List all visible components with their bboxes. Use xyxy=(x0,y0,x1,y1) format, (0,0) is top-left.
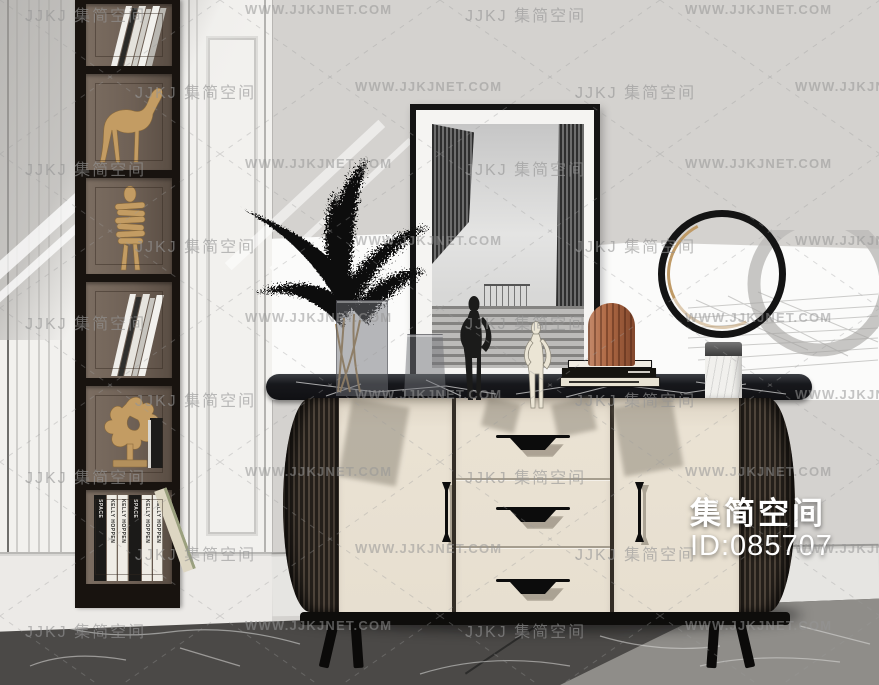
book-spine: KELLY HOPPEN xyxy=(153,495,163,581)
book-spine: SPACE xyxy=(94,495,106,581)
brand-overlay: 集简空间 ID:085707 xyxy=(690,498,833,562)
book xyxy=(562,368,656,377)
book-spine-label: KELLY HOPPEN xyxy=(120,495,126,543)
shelf-niche-books-mid xyxy=(86,282,172,378)
shelf-niche-horse xyxy=(86,74,172,170)
book-spine: KELLY HOPPEN xyxy=(118,495,128,581)
leaning-books xyxy=(86,4,172,66)
book-spine-label: KELLY HOPPEN xyxy=(109,495,115,543)
book-spine: SPACE xyxy=(129,495,141,581)
art-tower-left xyxy=(432,124,474,264)
book-row: SPACEKELLY HOPPENKELLY HOPPENSPACEKELLY … xyxy=(94,495,178,581)
brand-name: 集简空间 xyxy=(690,498,833,531)
drawer-divider xyxy=(456,546,610,548)
ring-lamp-base xyxy=(705,342,742,398)
book-spine-label xyxy=(160,490,161,494)
book-spine-label: KELLY HOPPEN xyxy=(144,495,150,543)
ring-lamp-base-cap xyxy=(705,342,742,356)
drawer-stack xyxy=(456,398,610,612)
interior-render: SPACEKELLY HOPPENKELLY HOPPENSPACEKELLY … xyxy=(0,0,879,685)
cast-shadow xyxy=(338,398,409,487)
white-figure-sculpture xyxy=(514,320,566,412)
cabinet-leg xyxy=(735,619,756,668)
bookshelf: SPACEKELLY HOPPENKELLY HOPPENSPACEKELLY … xyxy=(75,0,180,608)
hugging-figures-sculpture xyxy=(86,178,172,274)
book-spine: KELLY HOPPEN xyxy=(107,495,117,581)
glass-vase xyxy=(336,300,388,396)
model-id: ID:085707 xyxy=(690,531,833,563)
pampas-plant xyxy=(226,148,436,396)
cabinet-leg xyxy=(319,619,340,668)
cabinet-door-left xyxy=(339,398,452,612)
glass-vessel xyxy=(404,334,446,396)
cast-shadow xyxy=(612,397,683,476)
book-spine-label: SPACE xyxy=(97,495,103,518)
fluted-end-left xyxy=(283,398,339,612)
shelf-niche-rooster xyxy=(86,386,172,482)
book-spine: KELLY HOPPEN xyxy=(142,495,152,581)
drawer-handle-1 xyxy=(496,435,570,438)
shelf-niche-figures xyxy=(86,178,172,274)
shelf-niche-book-row: SPACEKELLY HOPPENKELLY HOPPENSPACEKELLY … xyxy=(86,490,172,584)
horse-sculpture xyxy=(86,74,172,170)
leaning-books xyxy=(86,282,172,378)
art-tower-right xyxy=(556,124,584,310)
drawer-divider xyxy=(456,478,610,480)
book xyxy=(560,377,660,387)
ring-lamp xyxy=(658,210,786,338)
drawer-handle-3 xyxy=(496,579,570,582)
book-spine-label: KELLY HOPPEN xyxy=(155,495,161,543)
black-figure-sculpture xyxy=(450,294,514,406)
cabinet-leg xyxy=(706,620,719,669)
drawer-handle-2 xyxy=(496,507,570,510)
rooster-sculpture xyxy=(86,386,172,482)
door-handle-right xyxy=(632,482,652,548)
shelf-niche-books-top xyxy=(86,4,172,66)
arch-decor xyxy=(588,303,635,366)
book-spine-label: SPACE xyxy=(132,495,138,518)
cabinet-leg xyxy=(350,620,363,669)
